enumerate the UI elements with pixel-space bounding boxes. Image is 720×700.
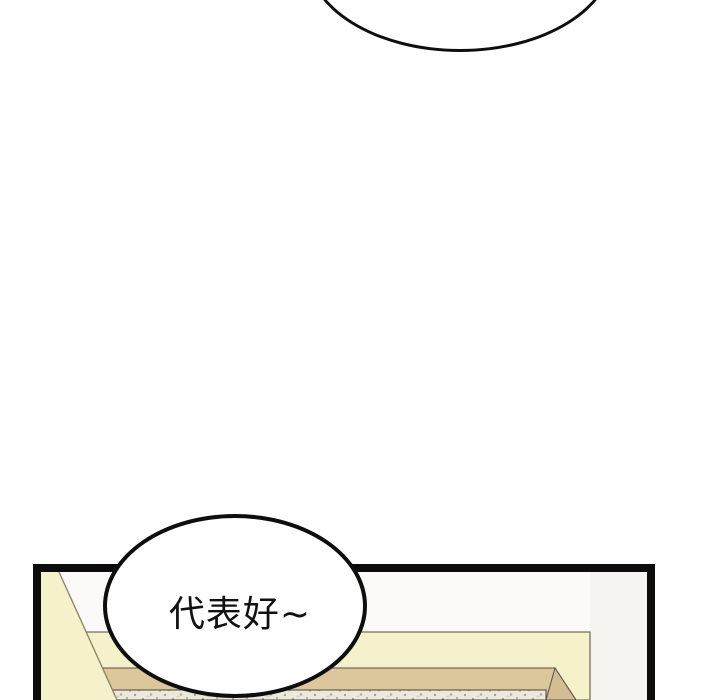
wall-shadow-tint xyxy=(590,572,647,700)
speech-bubble: 代表好~ xyxy=(103,514,367,698)
sofa-cushion-texture xyxy=(69,690,546,700)
speech-bubble-text: 代表好~ xyxy=(169,585,311,637)
speech-bubble-top-partial xyxy=(306,0,614,52)
comic-page: 代表好~ xyxy=(0,0,720,700)
